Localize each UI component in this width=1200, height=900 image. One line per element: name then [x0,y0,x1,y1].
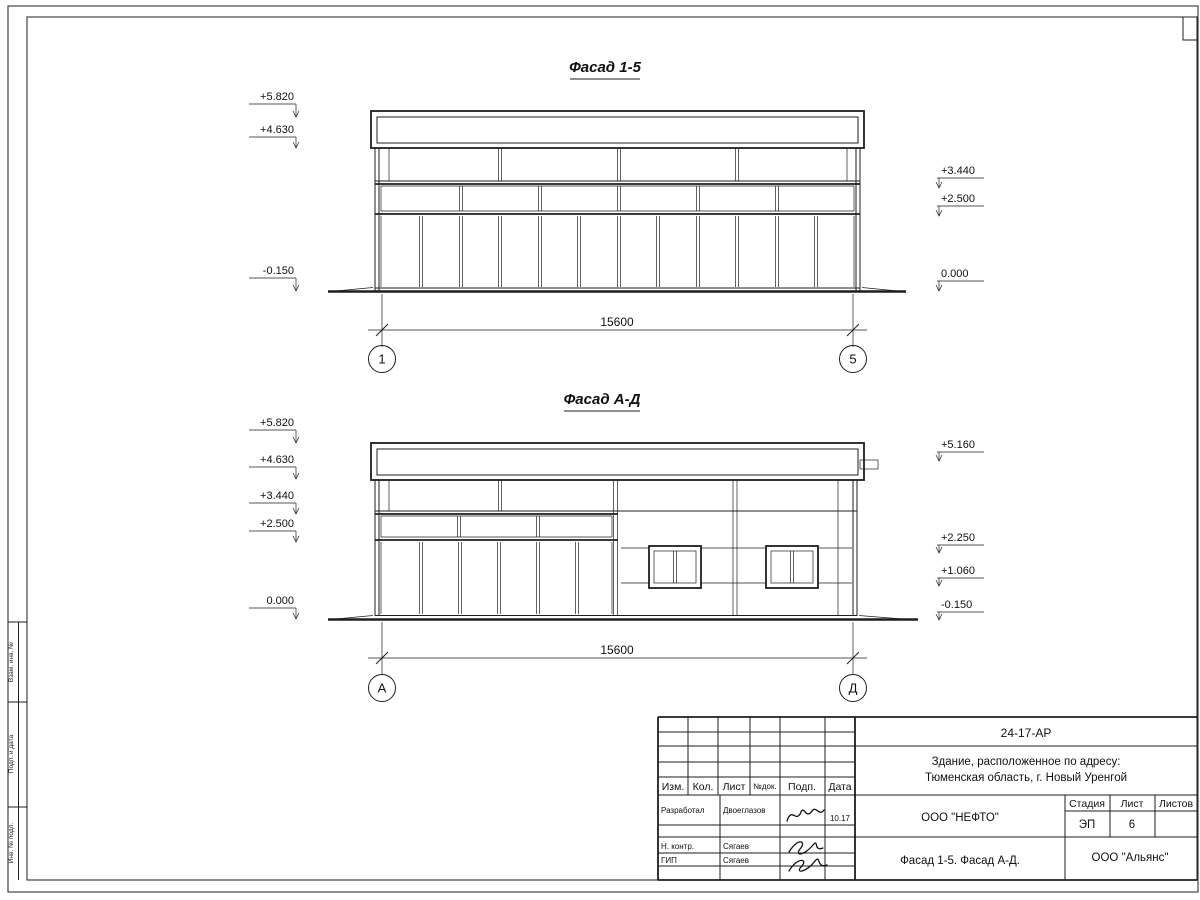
svg-text:+2.500: +2.500 [941,193,975,205]
svg-text:+4.630: +4.630 [260,124,294,136]
building-elevation-a-d [328,443,918,620]
col-podp: Подп. [788,781,816,793]
elevation-mark: +3.440 [936,165,984,188]
facade-1-5: Фасад 1-5 [249,59,984,373]
elevation-mark: +5.820 [249,91,299,117]
dimension-value: 15600 [600,315,634,329]
svg-text:+1.060: +1.060 [941,565,975,577]
org-name: ООО "НЕФТО" [921,812,999,824]
col-izm: Изм. [662,781,685,793]
object-address-line1: Здание, расположенное по адресу: [932,756,1121,768]
axis-markers-1-5: 1 5 [369,346,867,373]
svg-text:+5.820: +5.820 [260,417,294,429]
sheet-label: Лист [1121,798,1144,810]
svg-text:+2.250: +2.250 [941,532,975,544]
window [649,546,701,588]
facade-title: Фасад 1-5 [569,59,642,76]
axis-label: А [378,681,387,696]
col-list: Лист [723,781,746,793]
elevation-marks-right-1-5: +3.440 +2.500 0.000 [936,165,984,291]
object-address-line2: Тюменская область, г. Новый Уренгой [925,772,1127,784]
scupper [860,460,878,469]
revision-header: Изм. Кол. Лист №док. Подп. Дата [662,781,852,793]
elevation-mark: +3.440 [249,490,299,514]
dimension-value: 15600 [600,643,634,657]
dimension-1-5: 15600 [368,294,867,347]
left-margin-label: Взам. инв. № [8,642,15,682]
col-dok: №док. [753,782,776,791]
stage-label: Стадия [1069,798,1105,810]
role: ГИП [661,856,677,865]
stage-value: ЭП [1079,819,1096,831]
svg-text:+5.160: +5.160 [941,439,975,451]
company-name: ООО "Альянс" [1092,852,1169,864]
drawing-sheet: Взам. инв. № Подп. и дата Инв. № подл. Ф… [0,0,1200,900]
sheet-title: Фасад 1-5. Фасад А-Д. [900,855,1020,867]
left-margin-cells: Взам. инв. № Подп. и дата Инв. № подл. [8,622,27,880]
left-margin-label: Подп. и дата [8,734,15,773]
col-data: Дата [828,781,851,793]
name: Сягаев [723,842,749,851]
title-block: Изм. Кол. Лист №док. Подп. Дата Разработ… [658,717,1197,880]
axis-label: Д [849,681,858,696]
sheets-label: Листов [1159,798,1194,810]
elevation-marks-left-a-d: +5.820 +4.630 +3.440 +2.500 0.000 [249,417,299,619]
elevation-mark: +2.500 [249,518,299,542]
svg-text:0.000: 0.000 [941,268,969,280]
building-elevation-1-5 [328,111,906,292]
svg-text:-0.150: -0.150 [263,265,294,277]
elevation-mark: +1.060 [936,565,984,586]
axis-label: 1 [378,352,385,367]
name: Двоеглазов [723,806,766,815]
svg-text:+2.500: +2.500 [260,518,294,530]
elevation-mark: +4.630 [249,454,299,479]
staff-rows: Разработал Двоеглазов 10.17 Н. контр. Ся… [661,806,851,871]
elevation-mark: +5.160 [936,439,984,461]
axis-markers-a-d: А Д [369,675,867,702]
col-kol: Кол. [693,781,714,793]
elevation-mark: +2.250 [936,532,984,553]
signature [787,809,824,821]
role: Н. контр. [661,842,694,851]
elevation-marks-right-a-d: +5.160 +2.250 +1.060 -0.150 [936,439,984,620]
facade-a-d: Фасад А-Д [249,391,984,702]
corner-code-box [1183,17,1197,40]
svg-text:0.000: 0.000 [266,595,294,607]
svg-text:+3.440: +3.440 [260,490,294,502]
axis-label: 5 [849,352,856,367]
elevation-mark: 0.000 [249,595,299,619]
dimension-a-d: 15600 [368,622,867,675]
doc-code: 24-17-АР [1001,726,1052,740]
sheet-number: 6 [1129,819,1135,831]
svg-text:+5.820: +5.820 [260,91,294,103]
svg-text:+4.630: +4.630 [260,454,294,466]
elevation-mark: -0.150 [936,599,984,620]
elevation-mark: +4.630 [249,124,299,148]
elevation-mark: 0.000 [936,268,984,291]
signature [789,842,823,854]
elevation-mark: +5.820 [249,417,299,443]
left-margin-label: Инв. № подл. [8,823,15,864]
elevation-mark: +2.500 [936,193,984,216]
window [766,546,818,588]
elevation-marks-left-1-5: +5.820 +4.630 -0.150 [249,91,299,291]
svg-text:-0.150: -0.150 [941,599,972,611]
name: Сягаев [723,856,749,865]
svg-text:+3.440: +3.440 [941,165,975,177]
elevation-mark: -0.150 [249,265,299,291]
role: Разработал [661,806,705,815]
signature [789,859,827,871]
date: 10.17 [830,814,851,823]
facade-title: Фасад А-Д [564,391,641,408]
